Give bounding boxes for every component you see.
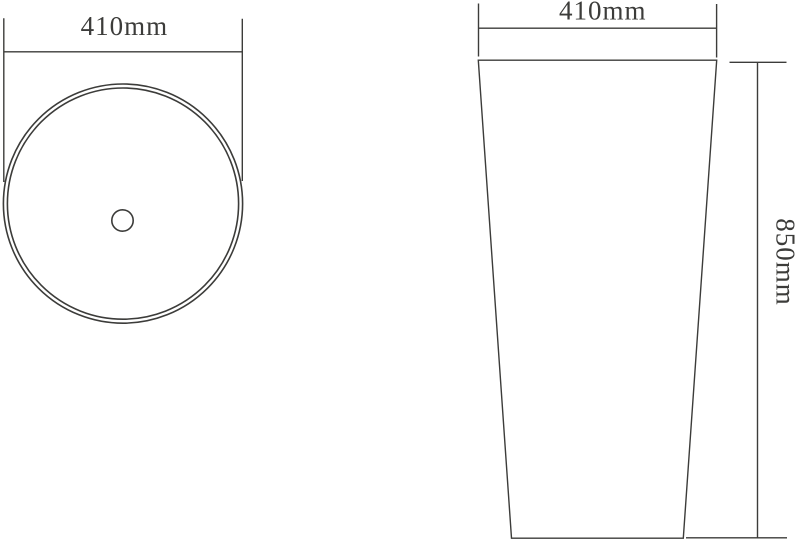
svg-text:850mm: 850mm xyxy=(771,218,800,306)
svg-text:410mm: 410mm xyxy=(559,0,647,26)
svg-text:410mm: 410mm xyxy=(81,11,169,41)
